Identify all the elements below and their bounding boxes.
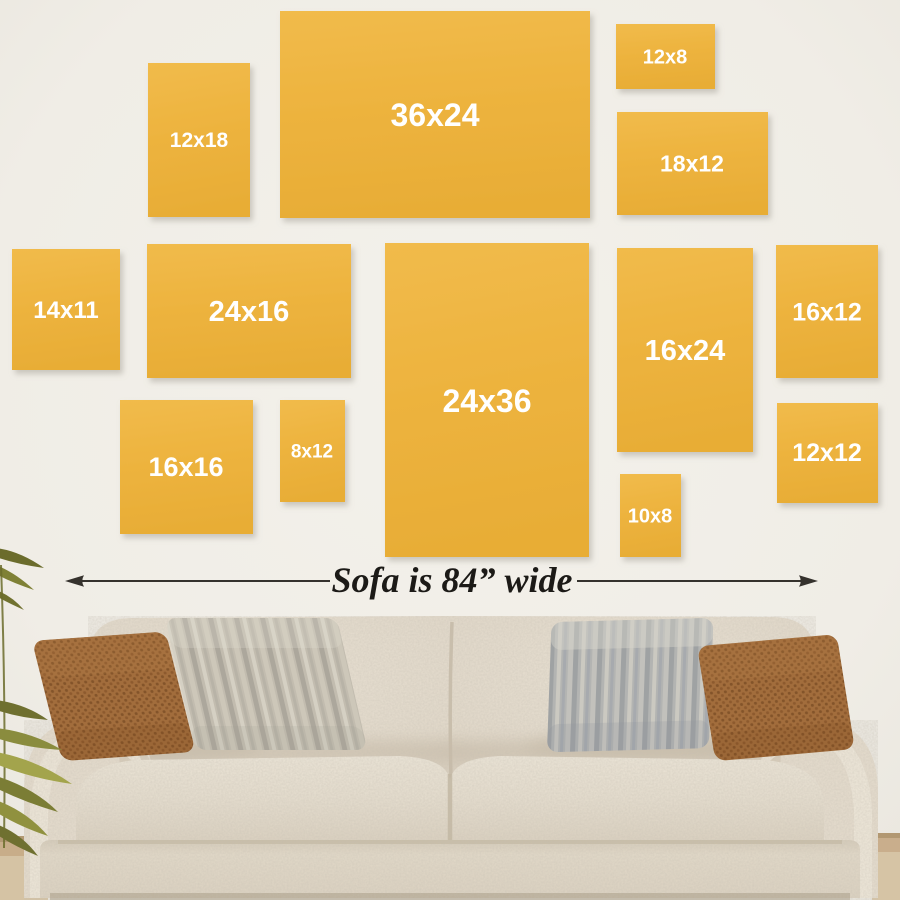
svg-text:16x16: 16x16 — [148, 452, 223, 482]
svg-text:14x11: 14x11 — [33, 297, 98, 324]
svg-text:10x8: 10x8 — [628, 506, 673, 528]
svg-text:36x24: 36x24 — [391, 97, 480, 133]
svg-text:Sofa is 84” wide: Sofa is 84” wide — [331, 560, 572, 600]
svg-text:12x12: 12x12 — [792, 439, 862, 467]
svg-text:16x12: 16x12 — [792, 299, 862, 327]
svg-text:12x18: 12x18 — [170, 129, 229, 152]
svg-text:8x12: 8x12 — [291, 442, 333, 463]
svg-text:18x12: 18x12 — [660, 151, 724, 177]
svg-text:16x24: 16x24 — [645, 335, 726, 367]
svg-text:24x16: 24x16 — [209, 296, 290, 328]
svg-text:12x8: 12x8 — [643, 47, 688, 69]
svg-text:24x36: 24x36 — [443, 383, 532, 419]
